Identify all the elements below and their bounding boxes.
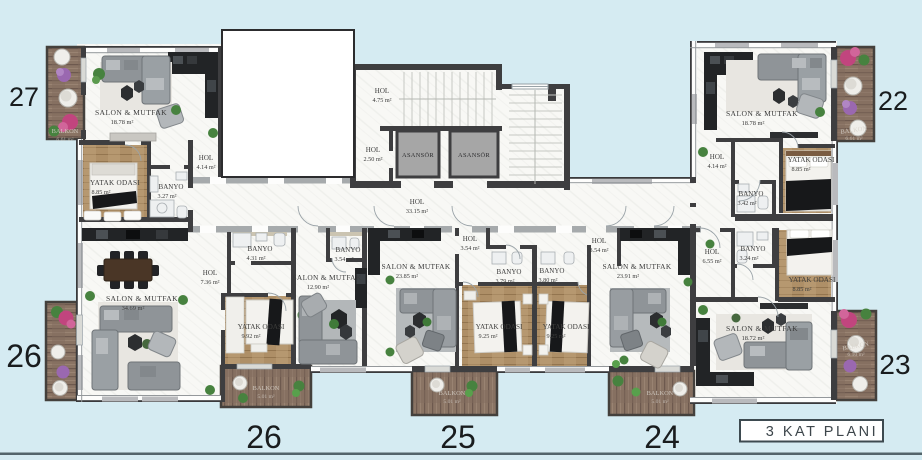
svg-text:26: 26 [246, 419, 282, 455]
svg-text:BANYO: BANYO [159, 183, 184, 191]
svg-text:ASANSÖR: ASANSÖR [402, 152, 434, 159]
svg-text:9.92 m²: 9.92 m² [241, 333, 260, 340]
svg-text:YATAK ODASI: YATAK ODASI [788, 156, 835, 164]
svg-text:9.25 m²: 9.25 m² [478, 333, 497, 340]
svg-text:YATAK ODASI: YATAK ODASI [476, 323, 523, 331]
svg-text:4.14 m²: 4.14 m² [707, 163, 726, 170]
svg-text:3.27 m²: 3.27 m² [157, 193, 176, 200]
svg-text:SALON & MUTFAK: SALON & MUTFAK [726, 109, 798, 118]
svg-text:23.85 m²: 23.85 m² [396, 273, 418, 280]
svg-text:HOL: HOL [592, 237, 606, 245]
svg-text:HOL: HOL [203, 269, 217, 277]
svg-text:6.55 m²: 6.55 m² [702, 258, 721, 265]
svg-text:34.69 m²: 34.69 m² [122, 305, 145, 312]
svg-text:BANYO: BANYO [739, 190, 764, 198]
svg-text:SALON & MUTFAK: SALON & MUTFAK [293, 273, 362, 282]
svg-text:BANYO: BANYO [248, 245, 273, 253]
svg-text:5.01 m²: 5.01 m² [257, 394, 275, 400]
svg-text:BALKON: BALKON [253, 385, 280, 392]
svg-text:3.24 m²: 3.24 m² [739, 255, 758, 262]
svg-text:BANYO: BANYO [497, 268, 522, 276]
svg-text:YATAK ODASI: YATAK ODASI [789, 276, 836, 284]
svg-text:3.54 m²: 3.54 m² [334, 256, 353, 263]
svg-text:HOL: HOL [710, 153, 724, 161]
svg-text:SALON & MUTFAK: SALON & MUTFAK [106, 294, 178, 303]
svg-text:6.61 m²: 6.61 m² [845, 136, 863, 142]
svg-text:8.85 m²: 8.85 m² [792, 286, 811, 293]
svg-text:26: 26 [6, 338, 42, 374]
svg-text:BALKON: BALKON [439, 390, 466, 397]
svg-text:3.79 m²: 3.79 m² [495, 278, 514, 285]
svg-text:YATAK ODASI: YATAK ODASI [238, 323, 285, 331]
svg-text:5.01 m²: 5.01 m² [443, 399, 461, 405]
svg-text:3.54 m²: 3.54 m² [589, 247, 608, 254]
svg-text:25: 25 [440, 419, 476, 455]
svg-text:33.15 m²: 33.15 m² [406, 208, 428, 215]
svg-text:SALON & MUTFAK: SALON & MUTFAK [603, 262, 672, 271]
svg-text:SALON & MUTFAK: SALON & MUTFAK [382, 262, 451, 271]
svg-text:24: 24 [644, 419, 680, 455]
svg-text:4.14 m²: 4.14 m² [196, 164, 215, 171]
svg-text:BALKON: BALKON [52, 128, 79, 135]
svg-text:3.80 m²: 3.80 m² [538, 277, 557, 284]
svg-text:18.72 m²: 18.72 m² [742, 335, 765, 342]
svg-text:HOL: HOL [463, 235, 477, 243]
svg-text:HOL: HOL [199, 154, 213, 162]
svg-text:SALON & MUTFAK: SALON & MUTFAK [726, 324, 798, 333]
svg-text:YATAK ODASI: YATAK ODASI [90, 179, 140, 187]
svg-text:HOL: HOL [705, 248, 719, 256]
svg-text:BALKON: BALKON [647, 390, 674, 397]
svg-text:22: 22 [878, 86, 908, 116]
svg-text:23.91 m²: 23.91 m² [617, 273, 639, 280]
svg-text:BANYO: BANYO [741, 245, 766, 253]
svg-text:BANYO: BANYO [540, 267, 565, 275]
svg-text:3.54 m²: 3.54 m² [460, 245, 479, 252]
svg-text:5.01 m²: 5.01 m² [651, 399, 669, 405]
svg-text:ASANSÖR: ASANSÖR [458, 152, 490, 159]
svg-text:4.31 m²: 4.31 m² [246, 255, 265, 262]
svg-text:2.50 m²: 2.50 m² [363, 156, 382, 163]
svg-text:12.90 m²: 12.90 m² [307, 284, 329, 291]
svg-text:18.78 m²: 18.78 m² [742, 120, 765, 127]
svg-text:4.75 m²: 4.75 m² [372, 97, 391, 104]
svg-text:9.25 m²: 9.25 m² [546, 333, 565, 340]
svg-text:8.85 m²: 8.85 m² [791, 166, 810, 173]
svg-text:3.42 m²: 3.42 m² [737, 200, 756, 207]
svg-text:3 KAT PLANI: 3 KAT PLANI [766, 424, 878, 440]
svg-text:YATAK ODASI: YATAK ODASI [543, 323, 590, 331]
svg-text:23: 23 [879, 349, 910, 380]
svg-text:HOL: HOL [375, 87, 389, 95]
svg-text:BANYO: BANYO [336, 246, 361, 254]
svg-text:8.85 m²: 8.85 m² [91, 189, 110, 196]
svg-text:HOL: HOL [410, 198, 424, 206]
svg-text:27: 27 [9, 82, 39, 112]
svg-text:SALON & MUTFAK: SALON & MUTFAK [95, 108, 167, 117]
svg-text:6.61 m²: 6.61 m² [56, 137, 74, 143]
svg-text:6.10 m²: 6.10 m² [847, 352, 865, 358]
svg-text:7.36 m²: 7.36 m² [200, 279, 219, 286]
svg-text:18.78 m²: 18.78 m² [111, 119, 134, 126]
svg-text:HOL: HOL [366, 146, 380, 154]
